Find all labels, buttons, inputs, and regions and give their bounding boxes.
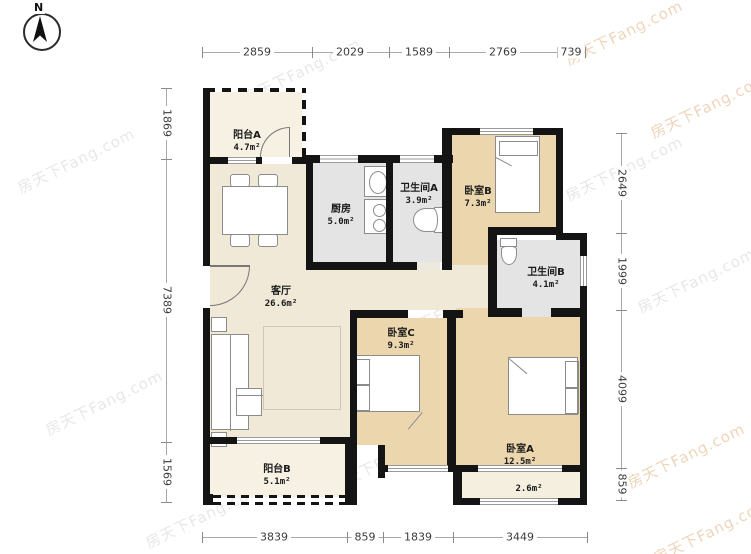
dim-tick — [161, 442, 172, 443]
watermark: 房天下Fang.com — [624, 418, 749, 493]
dim-tick — [453, 532, 454, 543]
dim-label: 1589 — [402, 46, 436, 59]
room-label-kitchen: 厨房 5.0m² — [306, 204, 376, 228]
wall-segment — [378, 445, 385, 478]
room-label-bedroom-b: 卧室B 7.3m² — [443, 186, 513, 210]
floorplan-canvas: 房天下Fang.com 房天下Fang.com 房天下Fang.com 房天下F… — [0, 0, 751, 554]
room-label-balcony-b: 阳台B 5.1m² — [237, 464, 317, 488]
dim-tick — [161, 159, 172, 160]
room-area: 4.1m² — [506, 280, 586, 291]
room-name: 卫生间B — [506, 267, 586, 280]
dim-label: 1999 — [616, 254, 629, 288]
dim-label: 739 — [558, 46, 585, 59]
window — [388, 465, 448, 472]
wall-segment — [350, 310, 357, 445]
dim-label: 1839 — [401, 531, 435, 544]
north-arrow-icon — [25, 15, 55, 45]
side-table — [211, 317, 227, 332]
wall-segment — [306, 262, 417, 270]
watermark: 房天下Fang.com — [562, 0, 687, 70]
room-bedroom-c-bay — [385, 445, 448, 465]
room-area: 2.6m² — [494, 484, 564, 495]
room-area: 12.5m² — [480, 457, 560, 468]
dim-tick — [312, 47, 313, 58]
dim-label: 3449 — [503, 531, 537, 544]
room-label-balcony-a: 阳台A 4.7m² — [207, 130, 287, 154]
bed-double-bedroom-a — [508, 357, 578, 415]
wall-segment — [443, 310, 463, 318]
dim-tick — [383, 532, 384, 543]
window — [237, 437, 320, 444]
pillow — [356, 359, 370, 385]
room-area: 7.3m² — [443, 199, 513, 210]
dim-label: 4099 — [616, 372, 629, 406]
dim-tick — [202, 532, 203, 543]
dim-label: 1569 — [161, 455, 174, 489]
toilet-bowl-a — [413, 208, 438, 232]
wall-segment — [358, 155, 400, 163]
window — [400, 155, 434, 163]
dining-chair — [230, 234, 250, 247]
dim-label: 3839 — [257, 531, 291, 544]
balcony-a-dashed-right — [302, 90, 306, 157]
pillow — [565, 361, 579, 388]
wall-segment — [306, 155, 320, 163]
wall-segment — [558, 498, 587, 505]
room-name: 阳台A — [207, 130, 287, 143]
window — [480, 128, 533, 135]
room-hallway-east — [452, 265, 488, 310]
watermark: 房天下Fang.com — [650, 493, 751, 554]
wall-segment — [562, 465, 587, 472]
wall-segment — [453, 498, 480, 505]
room-label-living: 客厅 26.6m² — [241, 286, 321, 310]
dim-tick — [616, 468, 627, 469]
compass-circle — [23, 13, 61, 51]
wall-segment — [488, 227, 563, 235]
dim-label: 859 — [352, 531, 379, 544]
room-label-bath-b: 卫生间B 4.1m² — [506, 267, 586, 291]
room-name: 厨房 — [306, 204, 376, 217]
dining-chair — [258, 234, 278, 247]
wall-segment — [488, 308, 522, 317]
wall-segment — [386, 163, 393, 262]
dim-tick — [616, 310, 627, 311]
watermark: 房天下Fang.com — [14, 123, 139, 198]
room-area: 5.1m² — [237, 477, 317, 488]
watermark: 房天下Fang.com — [42, 365, 167, 440]
room-name: 客厅 — [241, 286, 321, 299]
watermark: 房天下Fang.com — [647, 68, 751, 143]
dim-label: 2649 — [616, 166, 629, 200]
dim-tick — [202, 47, 203, 58]
dim-label: 1869 — [161, 106, 174, 140]
dining-table — [222, 186, 288, 235]
sofa-cushion-line — [230, 335, 231, 431]
window — [228, 157, 256, 164]
room-name: 阳台B — [237, 464, 317, 477]
room-name: 卧室C — [361, 328, 441, 341]
wall-segment — [488, 233, 497, 317]
wall-segment — [551, 308, 587, 317]
pillow — [356, 385, 370, 411]
dim-label: 7389 — [161, 283, 174, 317]
dim-tick — [587, 532, 588, 543]
pillow — [565, 388, 579, 414]
dim-tick — [616, 500, 627, 501]
wall-segment — [203, 494, 213, 505]
north-label: N — [32, 1, 45, 14]
pillow — [499, 141, 538, 156]
watermark: 房天下Fang.com — [634, 243, 751, 318]
blanket-fold — [508, 358, 527, 374]
room-area: 9.3m² — [361, 341, 441, 352]
window — [320, 155, 358, 163]
dim-tick — [616, 133, 627, 134]
wall-segment — [203, 308, 210, 443]
balcony-b-dashed — [213, 502, 345, 505]
room-area: 5.0m² — [306, 217, 376, 228]
wall-segment — [556, 128, 563, 240]
armchair-line — [237, 395, 263, 396]
wall-segment — [203, 157, 210, 266]
rug — [263, 326, 341, 410]
dim-tick — [585, 47, 586, 58]
dim-tick — [161, 502, 172, 503]
dim-label: 2859 — [240, 46, 274, 59]
bath-b-door-gap — [522, 308, 551, 317]
room-bedroom-b-entry — [452, 227, 488, 265]
dim-label: 2769 — [486, 46, 520, 59]
room-name: 卧室B — [443, 186, 513, 199]
dim-tick — [389, 47, 390, 58]
dim-tick — [347, 532, 348, 543]
bed-double-bedroom-c — [353, 355, 420, 412]
wall-segment — [452, 128, 480, 135]
wall-segment — [447, 310, 456, 472]
room-area: 26.6m² — [241, 299, 321, 310]
room-label-bedroom-a: 卧室A 12.5m² — [480, 444, 560, 468]
dim-label: 2029 — [333, 46, 367, 59]
wall-segment — [350, 310, 408, 318]
armchair — [236, 388, 262, 416]
room-label-bedroom-c: 卧室C 9.3m² — [361, 328, 441, 352]
room-name: 卧室A — [480, 444, 560, 457]
dim-tick — [616, 233, 627, 234]
blanket-fold — [496, 157, 512, 166]
window — [480, 498, 558, 505]
dim-tick — [161, 88, 172, 89]
room-label-bay: 2.6m² — [494, 484, 564, 495]
room-area: 4.7m² — [207, 143, 287, 154]
wall-segment — [345, 437, 357, 505]
balcony-b-dashed — [213, 495, 345, 498]
balcony-a-dashed-top — [206, 88, 306, 92]
bath-a-door-gap — [417, 262, 440, 270]
wall-segment — [256, 157, 262, 164]
dim-label: 859 — [616, 471, 629, 498]
dim-tick — [449, 47, 450, 58]
